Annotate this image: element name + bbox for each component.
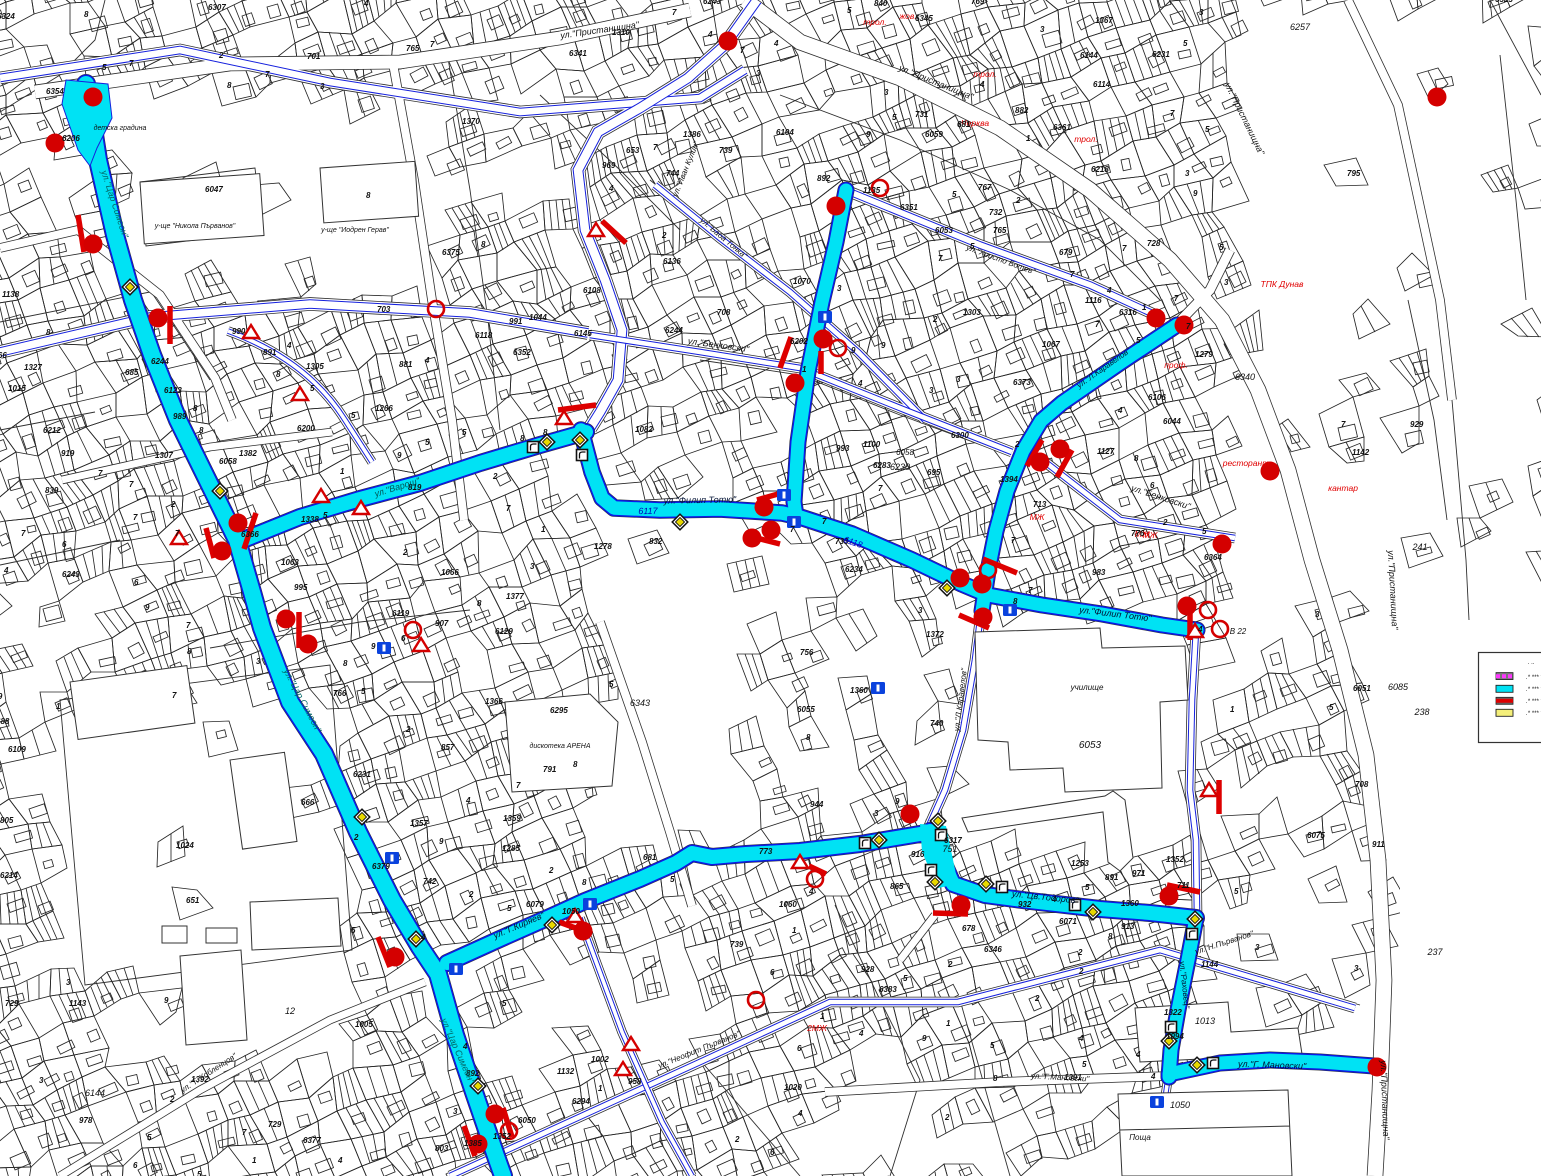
svg-text:5: 5	[102, 63, 107, 72]
svg-text:9: 9	[145, 603, 150, 612]
svg-text:5: 5	[310, 384, 315, 393]
svg-text:2: 2	[468, 890, 474, 899]
svg-text:6343: 6343	[630, 698, 650, 708]
svg-text:4: 4	[1106, 286, 1112, 295]
svg-text:1066: 1066	[441, 568, 459, 577]
svg-text:1: 1	[1230, 705, 1235, 714]
svg-text:7: 7	[1341, 420, 1346, 429]
svg-text:.* *** **: .* *** **	[1526, 699, 1541, 705]
svg-text:713: 713	[1033, 500, 1047, 509]
svg-text:765: 765	[406, 44, 420, 53]
svg-text:907: 907	[435, 619, 449, 628]
svg-text:6214: 6214	[0, 871, 18, 880]
svg-text:5: 5	[361, 687, 366, 696]
svg-text:7: 7	[133, 513, 138, 522]
svg-text:7: 7	[653, 143, 658, 152]
svg-text:8: 8	[343, 659, 348, 668]
svg-text:732: 732	[989, 208, 1003, 217]
svg-text:1285: 1285	[502, 844, 520, 853]
svg-text:3: 3	[1255, 943, 1260, 952]
svg-text:6202: 6202	[790, 337, 808, 346]
svg-text:5: 5	[1234, 887, 1239, 896]
svg-text:6058: 6058	[219, 457, 237, 466]
svg-text:7: 7	[129, 59, 134, 68]
svg-text:2: 2	[1014, 440, 1020, 449]
svg-text:891: 891	[263, 348, 277, 357]
svg-text:8: 8	[187, 647, 192, 656]
svg-text:6: 6	[401, 634, 406, 643]
svg-text:1138: 1138	[2, 290, 20, 299]
svg-text:1050: 1050	[1170, 1100, 1190, 1110]
svg-text:8: 8	[227, 81, 232, 90]
svg-text:7: 7	[1170, 109, 1175, 118]
svg-text:6244: 6244	[665, 326, 683, 335]
svg-text:3: 3	[1224, 278, 1229, 287]
svg-text:5: 5	[670, 875, 675, 884]
svg-text:8: 8	[1013, 597, 1018, 606]
svg-text:1266: 1266	[375, 404, 393, 413]
svg-text:3: 3	[1315, 610, 1320, 619]
svg-text:Поща: Поща	[1129, 1133, 1151, 1142]
svg-text:695: 695	[927, 468, 941, 477]
svg-text:803: 803	[435, 1144, 449, 1153]
svg-text:791: 791	[543, 765, 557, 774]
svg-text:2: 2	[661, 231, 667, 240]
svg-text:7: 7	[822, 517, 827, 526]
svg-text:5: 5	[351, 926, 356, 935]
svg-text:6053: 6053	[1079, 740, 1102, 751]
svg-text:6383: 6383	[879, 985, 897, 994]
svg-text:9: 9	[922, 1034, 927, 1043]
svg-text:751: 751	[942, 844, 957, 854]
svg-text:1352: 1352	[1166, 855, 1184, 864]
svg-text:1386: 1386	[683, 130, 701, 139]
svg-text:6118: 6118	[475, 331, 493, 340]
svg-text:9: 9	[866, 130, 871, 139]
svg-text:5: 5	[147, 1133, 152, 1142]
svg-text:9: 9	[397, 451, 402, 460]
svg-text:703: 703	[377, 305, 391, 314]
svg-text:6058: 6058	[896, 448, 914, 457]
svg-text:6295: 6295	[550, 706, 568, 715]
svg-text:5: 5	[990, 1041, 995, 1050]
svg-text:6: 6	[134, 578, 139, 587]
svg-text:1067: 1067	[1042, 340, 1060, 349]
svg-text:731: 731	[915, 110, 929, 119]
svg-text:3: 3	[884, 88, 889, 97]
svg-text:969: 969	[602, 161, 616, 170]
svg-text:739: 739	[730, 940, 744, 949]
svg-text:1060: 1060	[779, 900, 797, 909]
svg-text:3: 3	[1354, 964, 1359, 973]
svg-text:1044: 1044	[529, 313, 547, 322]
svg-text:1100: 1100	[863, 440, 881, 449]
svg-text:8: 8	[366, 191, 371, 200]
svg-text:7: 7	[1095, 320, 1100, 329]
svg-text:1082: 1082	[635, 425, 653, 434]
svg-text:трол.: трол.	[863, 17, 886, 27]
svg-text:6345: 6345	[915, 14, 933, 23]
svg-text:881: 881	[399, 360, 413, 369]
svg-text:6: 6	[133, 1161, 138, 1170]
svg-text:6294: 6294	[572, 1097, 590, 1106]
svg-text:3: 3	[530, 562, 535, 571]
svg-text:6059: 6059	[925, 130, 943, 139]
svg-text:7: 7	[1070, 270, 1075, 279]
svg-text:711: 711	[1177, 881, 1190, 890]
svg-text:1142: 1142	[1352, 448, 1370, 457]
svg-text:990: 990	[232, 327, 246, 336]
svg-text:2МЖ: 2МЖ	[806, 1023, 828, 1033]
svg-text:989: 989	[173, 412, 187, 421]
svg-text:6106: 6106	[1148, 393, 1166, 402]
svg-text:5: 5	[847, 6, 852, 15]
svg-text:3: 3	[256, 657, 261, 666]
svg-text:7: 7	[98, 469, 103, 478]
svg-text:5: 5	[425, 438, 430, 447]
svg-text:729: 729	[5, 999, 19, 1008]
svg-text:971: 971	[1132, 869, 1146, 878]
svg-text:ТПК Дунав: ТПК Дунав	[1261, 279, 1304, 289]
svg-text:1143: 1143	[69, 999, 87, 1008]
svg-text:4: 4	[1135, 1050, 1141, 1059]
svg-text:8: 8	[520, 434, 525, 443]
svg-text:756: 756	[800, 648, 814, 657]
svg-text:1: 1	[820, 1012, 825, 1021]
svg-text:3: 3	[956, 375, 961, 384]
svg-text:6218: 6218	[1091, 165, 1109, 174]
svg-text:1015: 1015	[8, 384, 26, 393]
svg-text:932: 932	[1018, 900, 1032, 909]
svg-text:7: 7	[175, 529, 180, 538]
svg-text:5: 5	[1205, 125, 1210, 134]
svg-text:1279: 1279	[1195, 350, 1213, 359]
svg-text:6066: 6066	[0, 351, 7, 360]
svg-text:6: 6	[770, 1148, 775, 1157]
svg-text:6: 6	[797, 1044, 802, 1053]
svg-text:5: 5	[1219, 243, 1224, 252]
svg-text:6: 6	[770, 968, 775, 977]
svg-text:6200: 6200	[297, 424, 315, 433]
svg-text:4: 4	[3, 566, 9, 575]
svg-text:4: 4	[424, 356, 430, 365]
svg-text:7: 7	[186, 621, 191, 630]
svg-text:679: 679	[1059, 248, 1073, 257]
svg-text:6123: 6123	[164, 386, 182, 395]
svg-text:3: 3	[837, 284, 842, 293]
svg-text:6257: 6257	[1290, 22, 1311, 32]
svg-text:7: 7	[1011, 536, 1016, 545]
svg-text:1127: 1127	[1097, 447, 1115, 456]
svg-text:7: 7	[506, 504, 511, 513]
svg-text:241: 241	[1411, 542, 1427, 552]
svg-text:4: 4	[858, 1029, 864, 1038]
svg-text:1070: 1070	[793, 277, 811, 286]
svg-text:7: 7	[1028, 586, 1033, 595]
svg-text:7: 7	[242, 1128, 247, 1137]
svg-text:839: 839	[45, 486, 59, 495]
svg-text:688: 688	[0, 717, 10, 726]
svg-text:6144: 6144	[1080, 51, 1098, 60]
svg-text:4: 4	[808, 887, 814, 896]
svg-text:5: 5	[1082, 1060, 1087, 1069]
svg-text:9: 9	[439, 837, 444, 846]
svg-text:1322: 1322	[1164, 1008, 1182, 1017]
svg-text:2: 2	[492, 472, 498, 481]
svg-text:2: 2	[932, 315, 938, 324]
svg-text:.* *** **: .* *** **	[1526, 675, 1541, 681]
svg-text:1370: 1370	[462, 117, 480, 126]
svg-text:4: 4	[707, 30, 713, 39]
svg-text:детска градина: детска градина	[94, 124, 147, 132]
svg-text:3: 3	[929, 386, 934, 395]
svg-text:995: 995	[294, 583, 308, 592]
svg-text:6075: 6075	[1307, 831, 1325, 840]
svg-text:1: 1	[946, 1019, 951, 1028]
svg-text:7: 7	[516, 781, 521, 790]
svg-text:.* *** **: .* *** **	[1526, 711, 1541, 717]
svg-text:882: 882	[1015, 106, 1029, 115]
svg-text:6136: 6136	[663, 257, 681, 266]
svg-text:2: 2	[353, 833, 359, 842]
svg-text:840: 840	[874, 0, 888, 8]
svg-text:трол.: трол.	[1074, 134, 1097, 144]
svg-text:5: 5	[502, 999, 507, 1008]
svg-text:3: 3	[918, 606, 923, 615]
svg-text:978: 978	[79, 1116, 93, 1125]
svg-text:891: 891	[1105, 873, 1119, 882]
svg-text:жов.: жов.	[898, 11, 916, 21]
svg-text:5: 5	[351, 411, 356, 420]
svg-text:6119: 6119	[392, 609, 410, 618]
svg-text:911: 911	[1372, 840, 1385, 849]
svg-text:1144: 1144	[1201, 960, 1219, 969]
svg-text:2: 2	[169, 1095, 175, 1104]
svg-text:3: 3	[320, 82, 325, 91]
svg-text:958: 958	[628, 1077, 642, 1086]
svg-text:8: 8	[46, 328, 51, 337]
svg-text:1024: 1024	[176, 841, 194, 850]
svg-text:7: 7	[878, 484, 883, 493]
svg-text:6324: 6324	[0, 12, 15, 21]
svg-text:1360: 1360	[850, 686, 868, 695]
svg-text:6243: 6243	[62, 570, 80, 579]
svg-text:7: 7	[938, 254, 943, 263]
svg-text:.* *** **: .* *** **	[1526, 687, 1541, 693]
svg-text:6354: 6354	[46, 87, 64, 96]
svg-text:8: 8	[477, 599, 482, 608]
svg-text:4: 4	[608, 184, 614, 193]
svg-text:5: 5	[1202, 527, 1207, 536]
svg-text:5: 5	[197, 1170, 202, 1176]
svg-text:1303: 1303	[963, 308, 981, 317]
svg-text:6341: 6341	[569, 49, 587, 58]
svg-text:653: 653	[626, 146, 640, 155]
svg-text:776: 776	[1131, 529, 1145, 538]
svg-text:1360: 1360	[1121, 899, 1139, 908]
svg-text:2: 2	[947, 960, 953, 969]
svg-text:7: 7	[672, 8, 677, 17]
svg-text:1: 1	[340, 467, 345, 476]
svg-text:795: 795	[1347, 169, 1361, 178]
svg-text:728: 728	[1147, 239, 1161, 248]
svg-text:МЖ: МЖ	[1030, 512, 1046, 522]
svg-text:2: 2	[1162, 518, 1168, 527]
svg-text:6071: 6071	[1059, 917, 1077, 926]
svg-text:6231: 6231	[1152, 50, 1170, 59]
svg-text:773: 773	[759, 847, 773, 856]
svg-text:765: 765	[993, 226, 1007, 235]
svg-text:6109: 6109	[8, 745, 26, 754]
svg-text:6145: 6145	[574, 329, 592, 338]
svg-text:7: 7	[265, 70, 270, 79]
svg-text:6379: 6379	[372, 862, 390, 871]
svg-text:993: 993	[836, 444, 850, 453]
svg-text:1050: 1050	[562, 907, 580, 916]
svg-text:1327: 1327	[24, 363, 42, 372]
svg-text:651: 651	[186, 896, 200, 905]
svg-text:742: 742	[423, 877, 437, 886]
svg-text:2: 2	[548, 866, 554, 875]
svg-text:4: 4	[286, 341, 292, 350]
svg-text:6044: 6044	[1163, 417, 1181, 426]
svg-text:7: 7	[430, 40, 435, 49]
svg-text:4: 4	[1078, 1034, 1084, 1043]
svg-text:701: 701	[307, 52, 321, 61]
svg-text:1: 1	[541, 525, 546, 534]
svg-text:237: 237	[1426, 947, 1443, 957]
svg-text:6129: 6129	[495, 627, 513, 636]
svg-text:5: 5	[892, 113, 897, 122]
svg-text:865: 865	[890, 882, 904, 891]
svg-text:6244: 6244	[151, 357, 169, 366]
svg-text:4: 4	[420, 933, 426, 942]
svg-text:5: 5	[952, 190, 957, 199]
svg-text:3: 3	[453, 1107, 458, 1116]
svg-text:2: 2	[1015, 196, 1021, 205]
svg-text:681: 681	[643, 853, 657, 862]
svg-text:7: 7	[1186, 322, 1191, 331]
svg-text:5: 5	[1183, 39, 1188, 48]
svg-text:238: 238	[1413, 707, 1429, 717]
svg-text:1367: 1367	[1095, 16, 1113, 25]
svg-text:6316: 6316	[1119, 308, 1137, 317]
svg-text:6114: 6114	[1093, 80, 1111, 89]
svg-text:1: 1	[1142, 303, 1147, 312]
svg-text:6364: 6364	[1204, 553, 1222, 562]
svg-text:1377: 1377	[506, 592, 524, 601]
svg-text:МЖ: МЖ	[1143, 530, 1159, 540]
svg-text:6375: 6375	[442, 248, 460, 257]
svg-text:6340: 6340	[1235, 372, 1255, 382]
svg-text:7: 7	[21, 529, 26, 538]
svg-text:9: 9	[164, 996, 169, 1005]
svg-text:1372: 1372	[926, 630, 944, 639]
svg-text:1305: 1305	[306, 362, 324, 371]
svg-text:8: 8	[193, 404, 198, 413]
svg-text:12: 12	[285, 1006, 295, 1016]
svg-text:6236: 6236	[136, 0, 154, 1]
svg-text:6050: 6050	[518, 1116, 536, 1125]
svg-text:892: 892	[817, 174, 831, 183]
svg-text:9: 9	[881, 341, 886, 350]
svg-text:6234: 6234	[845, 565, 863, 574]
svg-text:2: 2	[405, 725, 411, 734]
svg-text:3: 3	[1040, 25, 1045, 34]
svg-text:6231: 6231	[353, 770, 371, 779]
svg-text:1307: 1307	[155, 451, 173, 460]
svg-text:2: 2	[1077, 948, 1083, 957]
svg-text:7: 7	[1122, 244, 1127, 253]
svg-text:8: 8	[573, 760, 578, 769]
svg-text:6351: 6351	[900, 203, 918, 212]
svg-text:. ..: . ..	[1528, 660, 1535, 666]
svg-text:у-ще "Иодрен Герав": у-ще "Иодрен Герав"	[320, 226, 389, 234]
svg-text:1: 1	[56, 702, 61, 711]
svg-text:6361: 6361	[1053, 123, 1071, 132]
svg-text:кантар: кантар	[1328, 483, 1358, 493]
svg-text:4: 4	[1117, 406, 1123, 415]
svg-text:училище: училище	[1070, 683, 1104, 692]
svg-text:трол.: трол.	[973, 69, 996, 79]
svg-text:5: 5	[903, 974, 908, 983]
svg-text:5: 5	[462, 428, 467, 437]
svg-text:1352: 1352	[493, 1132, 511, 1141]
svg-text:2: 2	[218, 51, 224, 60]
svg-text:7: 7	[740, 46, 745, 55]
svg-text:3: 3	[756, 69, 761, 78]
svg-text:2: 2	[1034, 994, 1040, 1003]
svg-text:7: 7	[172, 691, 177, 700]
svg-text:5: 5	[609, 680, 614, 689]
svg-text:8: 8	[582, 878, 587, 887]
svg-text:6053: 6053	[935, 226, 953, 235]
svg-text:3: 3	[874, 809, 879, 818]
svg-text:1002: 1002	[591, 1055, 609, 1064]
svg-text:9: 9	[1193, 189, 1198, 198]
svg-text:7: 7	[129, 480, 134, 489]
svg-text:4: 4	[337, 1156, 343, 1165]
svg-text:766: 766	[333, 689, 347, 698]
svg-text:681: 681	[957, 120, 971, 129]
svg-text:4: 4	[857, 379, 863, 388]
svg-text:6206: 6206	[62, 134, 80, 143]
svg-text:3: 3	[1185, 169, 1190, 178]
svg-text:6315: 6315	[1495, 0, 1513, 4]
svg-text:2: 2	[944, 1113, 950, 1122]
svg-text:5: 5	[1136, 336, 1141, 345]
svg-text:6079: 6079	[526, 900, 544, 909]
svg-text:6366: 6366	[241, 530, 259, 539]
svg-text:6377: 6377	[303, 1136, 321, 1145]
svg-text:913: 913	[1121, 922, 1135, 931]
svg-text:857: 857	[441, 743, 455, 752]
svg-text:2: 2	[402, 548, 408, 557]
svg-text:944: 944	[810, 800, 824, 809]
svg-text:1116: 1116	[1085, 296, 1102, 305]
svg-text:708: 708	[717, 308, 731, 317]
svg-text:685: 685	[125, 368, 139, 377]
svg-text:1382: 1382	[239, 449, 257, 458]
svg-text:666: 666	[301, 798, 315, 807]
svg-text:2: 2	[734, 1135, 740, 1144]
svg-text:6243: 6243	[703, 0, 721, 6]
svg-text:1278: 1278	[594, 542, 612, 551]
svg-text:8: 8	[276, 370, 281, 379]
svg-text:1357: 1357	[410, 819, 428, 828]
svg-text:805: 805	[0, 816, 14, 825]
svg-text:6373: 6373	[1013, 378, 1031, 387]
